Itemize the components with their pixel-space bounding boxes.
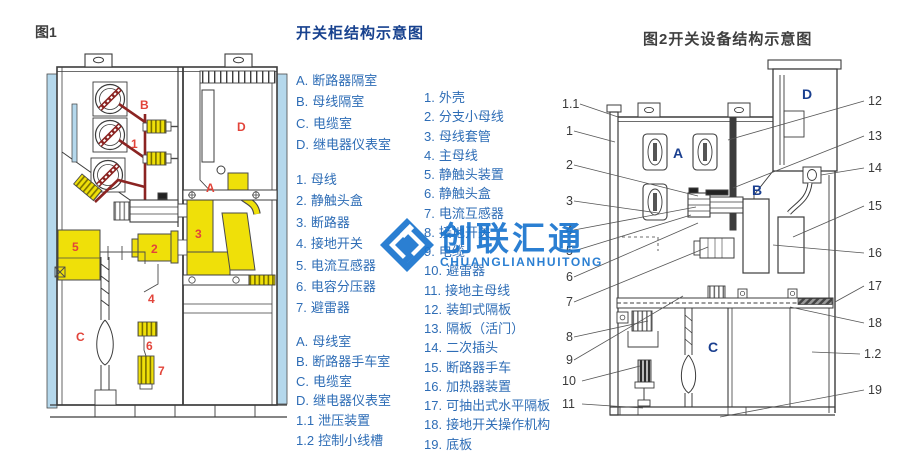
legend-item: 14.二次插头 bbox=[424, 338, 550, 357]
legend-item: 15.断路器手车 bbox=[424, 358, 550, 377]
svg-text:4: 4 bbox=[148, 292, 155, 306]
fig2-cable-room bbox=[628, 308, 790, 407]
fig1-bushing-insulators bbox=[91, 82, 127, 192]
legend-item: 8.接地开关 bbox=[424, 223, 550, 242]
figure2-diagram: 1.1 1 2 3 4 5 6 7 8 9 10 11 12 13 14 15 … bbox=[558, 55, 900, 465]
legend-item: 6.静触头盒 bbox=[424, 184, 550, 203]
legend-item: 12.装卸式隔板 bbox=[424, 300, 550, 319]
svg-text:18: 18 bbox=[868, 316, 882, 330]
svg-text:8: 8 bbox=[566, 330, 573, 344]
legend-fig2-list: 1.外壳2.分支小母线3.母线套管4.主母线5.静触头装置6.静触头盒7.电流互… bbox=[424, 88, 550, 454]
legend-item: 19.底板 bbox=[424, 435, 550, 454]
svg-text:A: A bbox=[206, 181, 215, 195]
svg-text:17: 17 bbox=[868, 279, 882, 293]
svg-text:B: B bbox=[752, 182, 762, 198]
legend-item: 17.可抽出式水平隔板 bbox=[424, 396, 550, 415]
svg-text:3: 3 bbox=[566, 194, 573, 208]
fig1-current-transformer bbox=[58, 230, 100, 280]
svg-text:5: 5 bbox=[72, 240, 79, 254]
legend-item: 1.1泄压装置 bbox=[296, 411, 391, 431]
legend-main-title: 开关柜结构示意图 bbox=[296, 22, 424, 43]
legend-parts-list: 1.母线2.静触头盒3.断路器4.接地开关5.电流互感器6.电容分压器7.避雷器 bbox=[296, 169, 376, 319]
legend-item: 2.分支小母线 bbox=[424, 107, 550, 126]
legend-item: 4.主母线 bbox=[424, 146, 550, 165]
svg-text:1: 1 bbox=[131, 137, 138, 151]
legend-item: 10.避雷器 bbox=[424, 261, 550, 280]
legend-item: 6.电容分压器 bbox=[296, 276, 376, 297]
fig2-cable bbox=[681, 308, 695, 407]
figure2-title: 图2开关设备结构示意图 bbox=[643, 28, 812, 49]
svg-text:5: 5 bbox=[566, 244, 573, 258]
svg-text:D: D bbox=[802, 86, 812, 102]
fig2-right-callouts: 12 13 14 15 16 17 18 1.2 19 bbox=[864, 94, 882, 397]
legend-item: 7.电流互感器 bbox=[424, 204, 550, 223]
legend-item: 1.母线 bbox=[296, 169, 376, 190]
svg-text:B: B bbox=[140, 98, 149, 112]
legend-item: A.母线室 bbox=[296, 332, 391, 352]
legend-item: D.继电器仪表室 bbox=[296, 391, 391, 411]
svg-text:2: 2 bbox=[151, 242, 158, 256]
svg-text:10: 10 bbox=[562, 374, 576, 388]
legend-item: B.母线隔室 bbox=[296, 91, 391, 112]
legend-item: 1.2控制小线槽 bbox=[296, 431, 391, 451]
svg-text:15: 15 bbox=[868, 199, 882, 213]
svg-text:1: 1 bbox=[566, 124, 573, 138]
legend-item: 3.断路器 bbox=[296, 212, 376, 233]
fig2-left-callouts: 1.1 1 2 3 4 5 6 7 8 9 10 11 bbox=[562, 97, 579, 411]
svg-text:D: D bbox=[237, 120, 246, 134]
legend-item: 13.隔板（活门） bbox=[424, 319, 550, 338]
svg-text:9: 9 bbox=[566, 353, 573, 367]
legend-item: 4.接地开关 bbox=[296, 233, 376, 254]
legend-item: 18.接地开关操作机构 bbox=[424, 415, 550, 434]
svg-text:7: 7 bbox=[566, 295, 573, 309]
fig1-lifting-tabs bbox=[85, 54, 252, 67]
svg-text:2: 2 bbox=[566, 158, 573, 172]
legend-item: 16.加热器装置 bbox=[424, 377, 550, 396]
legend-item: 5.电流互感器 bbox=[296, 255, 376, 276]
svg-text:4: 4 bbox=[566, 223, 573, 237]
svg-text:11: 11 bbox=[562, 397, 575, 411]
legend-item: 9.电缆 bbox=[424, 242, 550, 261]
svg-text:6: 6 bbox=[566, 270, 573, 284]
legend-item: 1.外壳 bbox=[424, 88, 550, 107]
svg-text:16: 16 bbox=[868, 246, 882, 260]
legend-item: C.电缆室 bbox=[296, 372, 391, 392]
legend-item: C.电缆室 bbox=[296, 113, 391, 134]
svg-text:A: A bbox=[673, 145, 683, 161]
figure1-caption: 图1 bbox=[35, 22, 57, 42]
svg-text:C: C bbox=[76, 330, 85, 344]
svg-text:1.2: 1.2 bbox=[864, 347, 881, 361]
legend-item: D.继电器仪表室 bbox=[296, 134, 391, 155]
svg-text:13: 13 bbox=[868, 129, 882, 143]
svg-text:C: C bbox=[708, 339, 718, 355]
legend-item: B.断路器手车室 bbox=[296, 352, 391, 372]
legend-item: 7.避雷器 bbox=[296, 297, 376, 318]
svg-text:12: 12 bbox=[868, 94, 882, 108]
legend-item: 2.静触头盒 bbox=[296, 190, 376, 211]
figure1-diagram: B 1 D A 5 2 3 4 6 7 C bbox=[40, 52, 290, 432]
legend-rooms-list: A.母线室B.断路器手车室C.电缆室D.继电器仪表室1.1泄压装置1.2控制小线… bbox=[296, 332, 391, 451]
legend-item: A.断路器隔室 bbox=[296, 70, 391, 91]
svg-text:14: 14 bbox=[868, 161, 882, 175]
legend-item: 11.接地主母线 bbox=[424, 281, 550, 300]
svg-text:19: 19 bbox=[868, 383, 882, 397]
svg-text:7: 7 bbox=[158, 364, 165, 378]
fig2-relay-room bbox=[754, 60, 841, 217]
svg-text:3: 3 bbox=[195, 227, 202, 241]
legend-item: 5.静触头装置 bbox=[424, 165, 550, 184]
page: 图1 bbox=[0, 0, 900, 474]
legend-compartments-list: A.断路器隔室B.母线隔室C.电缆室D.继电器仪表室 bbox=[296, 70, 391, 156]
svg-text:6: 6 bbox=[146, 339, 153, 353]
svg-text:1.1: 1.1 bbox=[562, 97, 579, 111]
legend-item: 3.母线套管 bbox=[424, 127, 550, 146]
